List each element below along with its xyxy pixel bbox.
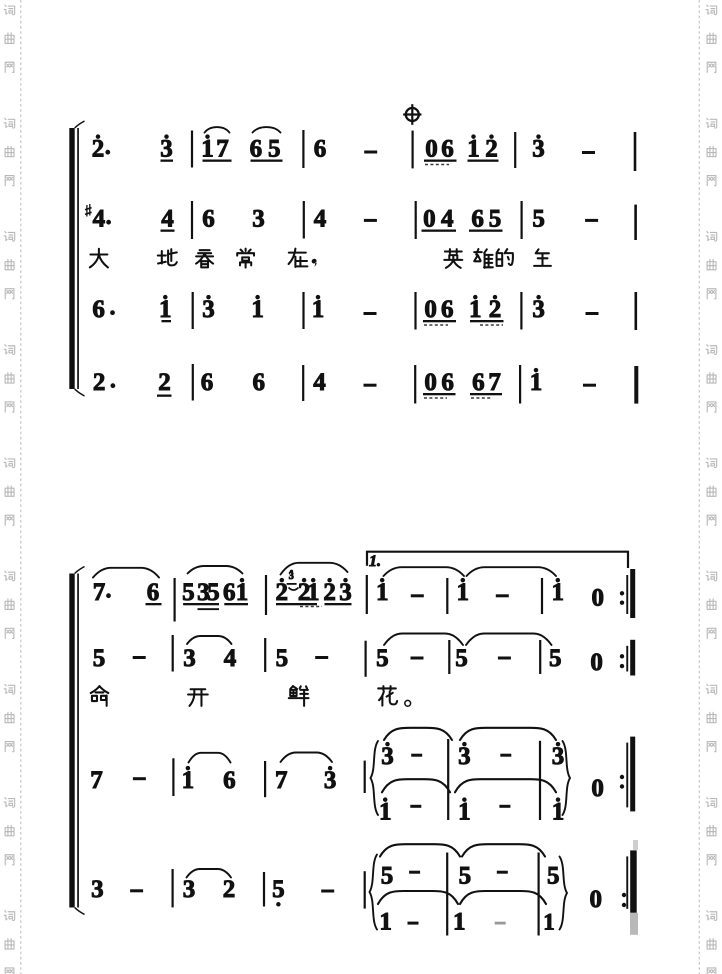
- svg-text:5: 5: [207, 579, 220, 606]
- svg-text:2: 2: [92, 136, 105, 163]
- svg-text:5: 5: [182, 579, 195, 606]
- svg-text:1: 1: [552, 579, 565, 606]
- svg-text:6: 6: [147, 579, 160, 606]
- svg-text:5: 5: [376, 645, 389, 672]
- svg-text:1: 1: [469, 296, 482, 323]
- svg-text:4: 4: [441, 206, 454, 233]
- svg-text:7: 7: [93, 579, 106, 606]
- svg-text:5: 5: [532, 206, 545, 233]
- svg-text:1: 1: [307, 579, 320, 606]
- svg-text:7: 7: [488, 369, 501, 396]
- svg-text:1: 1: [457, 579, 470, 606]
- svg-text:3: 3: [552, 743, 565, 770]
- svg-text:6: 6: [441, 369, 454, 396]
- svg-text:1: 1: [530, 369, 543, 396]
- svg-text:0: 0: [591, 584, 604, 611]
- svg-text:5: 5: [489, 206, 502, 233]
- svg-text:6: 6: [223, 767, 236, 794]
- svg-text:2: 2: [323, 579, 336, 606]
- svg-text:5: 5: [549, 645, 562, 672]
- svg-text:3: 3: [160, 136, 173, 163]
- svg-text:5: 5: [268, 136, 281, 163]
- svg-text:4: 4: [161, 206, 174, 233]
- svg-text:1.: 1.: [369, 553, 381, 570]
- svg-text:1: 1: [379, 909, 392, 936]
- svg-text:2: 2: [93, 369, 106, 396]
- svg-text:2: 2: [276, 579, 289, 606]
- svg-text:3: 3: [381, 743, 394, 770]
- svg-text:3: 3: [252, 206, 265, 233]
- svg-text:3: 3: [91, 876, 104, 903]
- svg-text:7: 7: [216, 136, 229, 163]
- svg-text:0: 0: [423, 206, 436, 233]
- svg-text:6: 6: [223, 579, 236, 606]
- svg-text:7: 7: [90, 767, 103, 794]
- svg-text:4: 4: [93, 206, 106, 233]
- svg-text:4: 4: [224, 645, 237, 672]
- svg-text:6: 6: [253, 369, 266, 396]
- svg-text:6: 6: [201, 369, 214, 396]
- svg-text:7: 7: [275, 767, 288, 794]
- svg-text:3: 3: [458, 743, 471, 770]
- svg-text:6: 6: [250, 136, 263, 163]
- svg-text:1: 1: [458, 799, 471, 826]
- svg-text:0: 0: [424, 369, 437, 396]
- svg-text:1: 1: [543, 910, 555, 935]
- svg-text:2: 2: [158, 369, 171, 396]
- svg-text:5: 5: [455, 645, 468, 672]
- svg-text:3: 3: [183, 876, 196, 903]
- svg-text:5: 5: [459, 863, 472, 890]
- svg-text:1: 1: [251, 296, 264, 323]
- svg-text:0: 0: [424, 296, 437, 323]
- svg-text:6: 6: [92, 296, 105, 323]
- svg-text:5: 5: [93, 645, 106, 672]
- svg-text:6: 6: [441, 136, 454, 163]
- svg-text:4: 4: [314, 206, 327, 233]
- svg-text:1: 1: [201, 136, 214, 163]
- svg-text:6: 6: [202, 206, 215, 233]
- svg-text:3: 3: [324, 767, 337, 794]
- svg-text:6: 6: [471, 206, 484, 233]
- svg-text:1: 1: [236, 579, 249, 606]
- svg-text:1: 1: [552, 799, 565, 826]
- svg-text:1: 1: [159, 296, 172, 323]
- svg-text:6: 6: [472, 369, 485, 396]
- svg-text:3: 3: [339, 579, 352, 606]
- svg-text:3: 3: [532, 296, 545, 323]
- svg-text:1: 1: [376, 579, 389, 606]
- svg-text:6: 6: [314, 136, 327, 163]
- svg-text:6: 6: [441, 296, 454, 323]
- svg-text:2: 2: [223, 876, 236, 903]
- svg-text:3: 3: [183, 645, 196, 672]
- svg-text:1: 1: [379, 799, 392, 826]
- svg-text:3: 3: [532, 136, 545, 163]
- svg-text:5: 5: [381, 863, 394, 890]
- svg-text:5: 5: [272, 876, 285, 903]
- svg-text:1: 1: [453, 909, 466, 936]
- svg-text:5: 5: [547, 863, 560, 890]
- svg-text:0: 0: [590, 649, 603, 676]
- svg-text:4: 4: [313, 369, 326, 396]
- svg-text:1: 1: [312, 296, 325, 323]
- svg-text:0: 0: [591, 775, 604, 802]
- svg-text:2: 2: [489, 296, 502, 323]
- svg-text:3: 3: [202, 296, 215, 323]
- svg-text:1: 1: [467, 136, 480, 163]
- svg-text:1: 1: [182, 767, 195, 794]
- svg-text:0: 0: [590, 886, 603, 913]
- svg-text:2: 2: [485, 136, 498, 163]
- svg-text:5: 5: [276, 645, 289, 672]
- svg-text:0: 0: [425, 136, 438, 163]
